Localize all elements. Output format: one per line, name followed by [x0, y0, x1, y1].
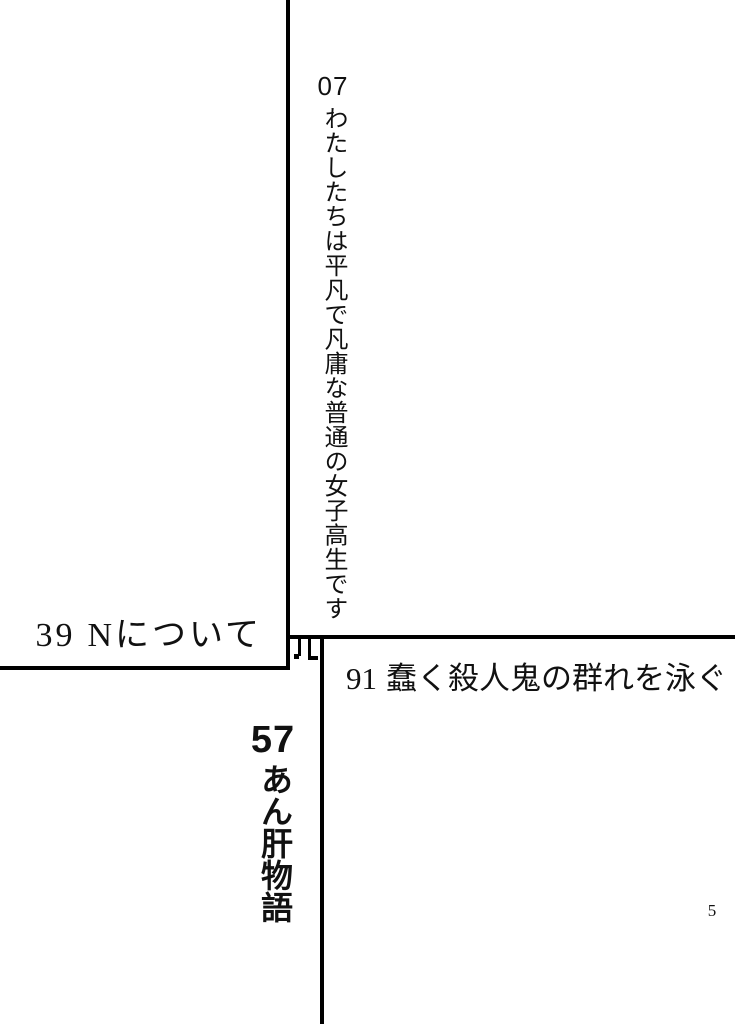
- toc-entry-39-page-number: 39: [35, 617, 75, 654]
- page-number: 5: [701, 901, 723, 921]
- junction-inner-stroke-left-foot: [294, 654, 299, 659]
- toc-entry-39-title: Nについて: [87, 617, 262, 654]
- rule-horizontal-left: [0, 666, 290, 671]
- toc-entry-91-title: 蠢く殺人鬼の群れを泳ぐ: [386, 661, 727, 696]
- rule-vertical-top: [286, 0, 291, 670]
- toc-entry-57-title: あん肝物語: [258, 763, 292, 923]
- toc-entry-91: 91蠢く殺人鬼の群れを泳ぐ: [346, 653, 727, 698]
- toc-entry-07-page-number: 07: [316, 71, 350, 102]
- toc-entry-07-title: わたしたちは平凡で凡庸な普通の女子高生です: [320, 106, 346, 621]
- toc-page: 07 わたしたちは平凡で凡庸な普通の女子高生です 39Nについて 91蠢く殺人鬼…: [0, 0, 735, 1024]
- toc-entry-91-page-number: 91: [346, 661, 377, 696]
- toc-entry-57-page-number: 57: [240, 719, 306, 762]
- rule-vertical-bottom: [320, 635, 325, 1024]
- rule-horizontal-right: [286, 635, 735, 639]
- junction-inner-stroke-right-foot: [308, 656, 318, 660]
- toc-entry-39: 39Nについて: [35, 607, 262, 656]
